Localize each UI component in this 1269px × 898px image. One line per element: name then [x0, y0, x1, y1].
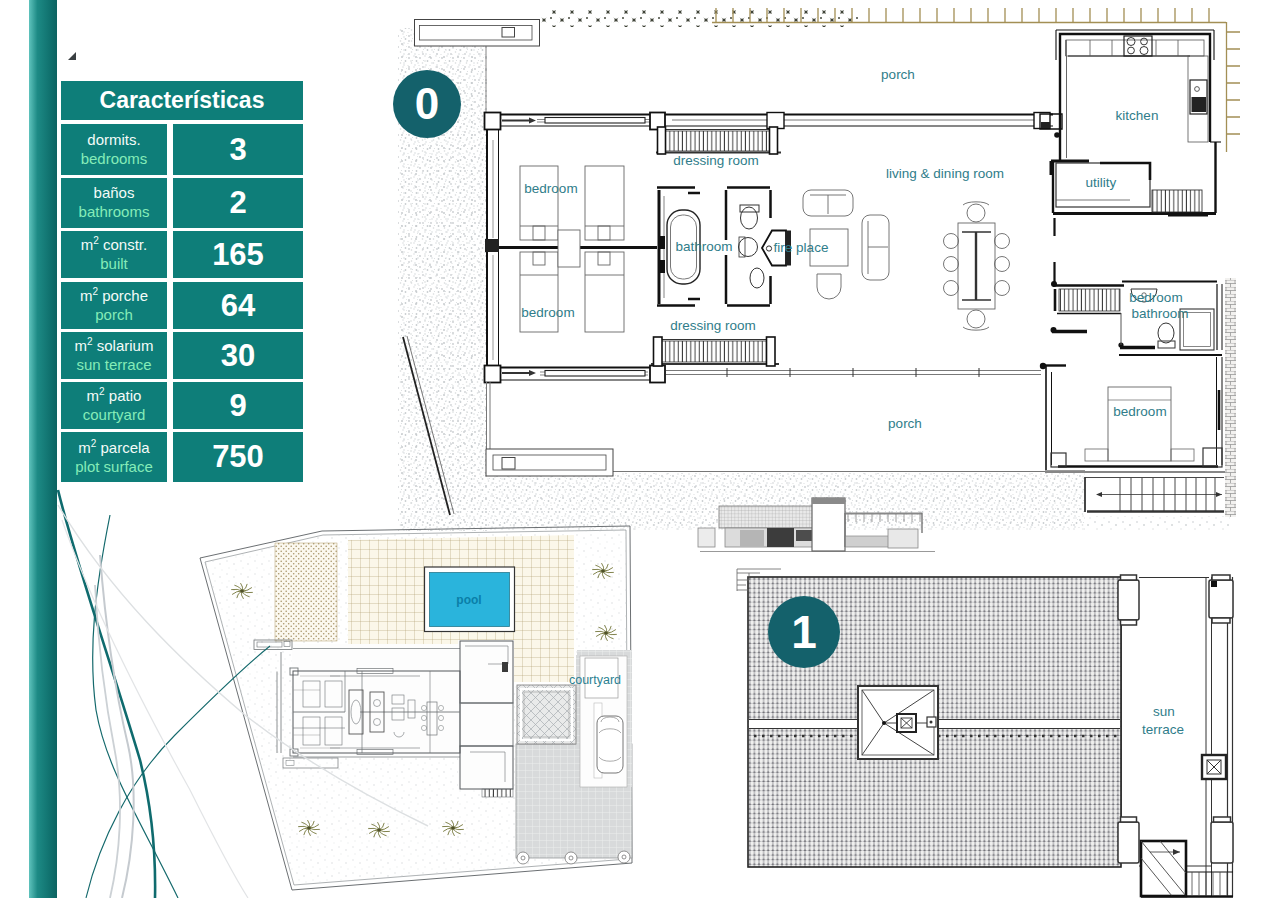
svg-text:bedroom: bedroom [521, 305, 574, 320]
svg-text:utility: utility [1086, 175, 1117, 190]
svg-text:courtyard: courtyard [569, 673, 621, 687]
svg-text:sun: sun [1153, 704, 1175, 719]
svg-text:living & dining room: living & dining room [886, 166, 1004, 181]
svg-text:bedroom: bedroom [524, 181, 577, 196]
svg-text:bathroom: bathroom [1131, 306, 1188, 321]
svg-text:pool: pool [456, 593, 481, 607]
svg-text:kitchen: kitchen [1116, 108, 1159, 123]
svg-text:fire place: fire place [774, 240, 829, 255]
svg-text:dressing room: dressing room [673, 153, 759, 168]
svg-text:terrace: terrace [1142, 722, 1184, 737]
svg-text:porch: porch [888, 416, 922, 431]
svg-text:bathroom: bathroom [675, 239, 732, 254]
svg-text:bedroom: bedroom [1129, 290, 1182, 305]
svg-text:bedroom: bedroom [1113, 404, 1166, 419]
svg-text:dressing room: dressing room [670, 318, 756, 333]
svg-text:porch: porch [881, 67, 915, 82]
